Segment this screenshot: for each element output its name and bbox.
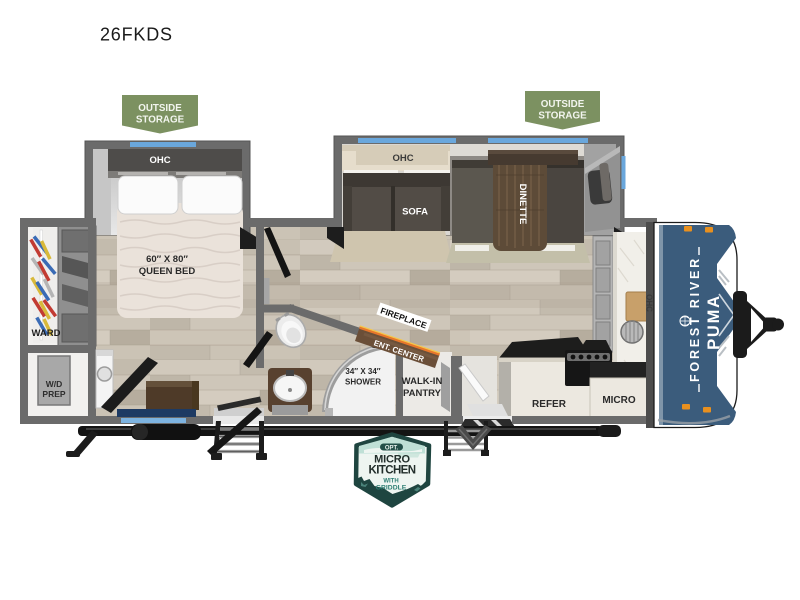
svg-text:W/D: W/D [46,379,63,389]
svg-text:STORAGE: STORAGE [136,115,185,126]
svg-text:OHC: OHC [645,294,654,312]
svg-text:STORAGE: STORAGE [538,111,587,122]
svg-text:OHC: OHC [149,155,170,166]
svg-text:34″ X 34″: 34″ X 34″ [345,367,380,376]
svg-text:PUMA: PUMA [705,294,723,350]
svg-text:WALK-IN: WALK-IN [402,376,443,387]
svg-text:60″ X 80″: 60″ X 80″ [146,254,188,265]
svg-text:PREP: PREP [42,389,65,399]
svg-text:OPT.: OPT. [385,445,399,451]
svg-text:QUEEN BED: QUEEN BED [139,266,196,277]
svg-text:REFER: REFER [532,399,567,410]
svg-text:OHC: OHC [392,153,413,164]
svg-text:SHOWER: SHOWER [345,378,381,387]
svg-text:KITCHEN: KITCHEN [369,465,416,477]
svg-text:SOFA: SOFA [402,207,428,218]
svg-text:GRIDDLE: GRIDDLE [376,485,407,492]
svg-text:PANTRY: PANTRY [403,388,442,399]
svg-text:26FKDS: 26FKDS [100,25,173,45]
svg-text:WARD: WARD [31,328,60,339]
svg-text:MICRO: MICRO [602,395,636,406]
svg-text:OUTSIDE: OUTSIDE [541,99,585,110]
svg-text:OUTSIDE: OUTSIDE [138,103,182,114]
svg-text:DINETTE: DINETTE [517,184,528,225]
